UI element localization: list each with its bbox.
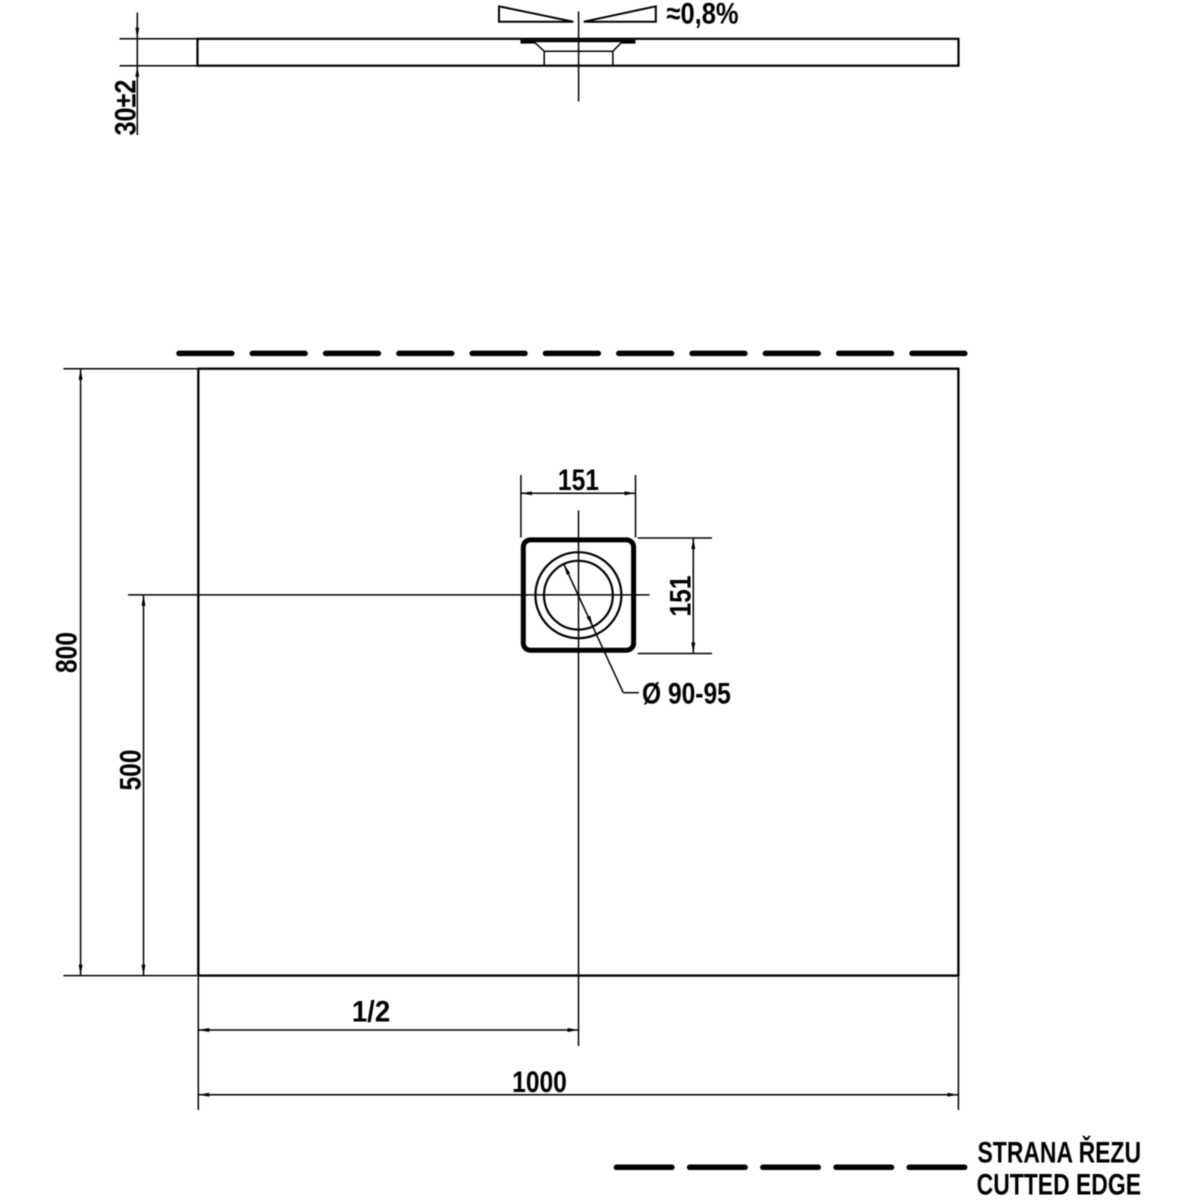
svg-text:≈0,8%: ≈0,8% — [667, 0, 739, 30]
svg-text:Ø 90-95: Ø 90-95 — [642, 676, 731, 710]
svg-text:500: 500 — [113, 749, 147, 790]
svg-text:CUTTED EDGE: CUTTED EDGE — [977, 1167, 1141, 1200]
svg-text:800: 800 — [49, 632, 83, 673]
svg-text:STRANA ŘEZU: STRANA ŘEZU — [978, 1136, 1141, 1170]
svg-text:30±2: 30±2 — [109, 80, 143, 136]
svg-text:1/2: 1/2 — [352, 995, 390, 1028]
svg-text:151: 151 — [663, 575, 697, 616]
svg-text:1000: 1000 — [512, 1065, 567, 1099]
svg-text:151: 151 — [558, 462, 599, 496]
